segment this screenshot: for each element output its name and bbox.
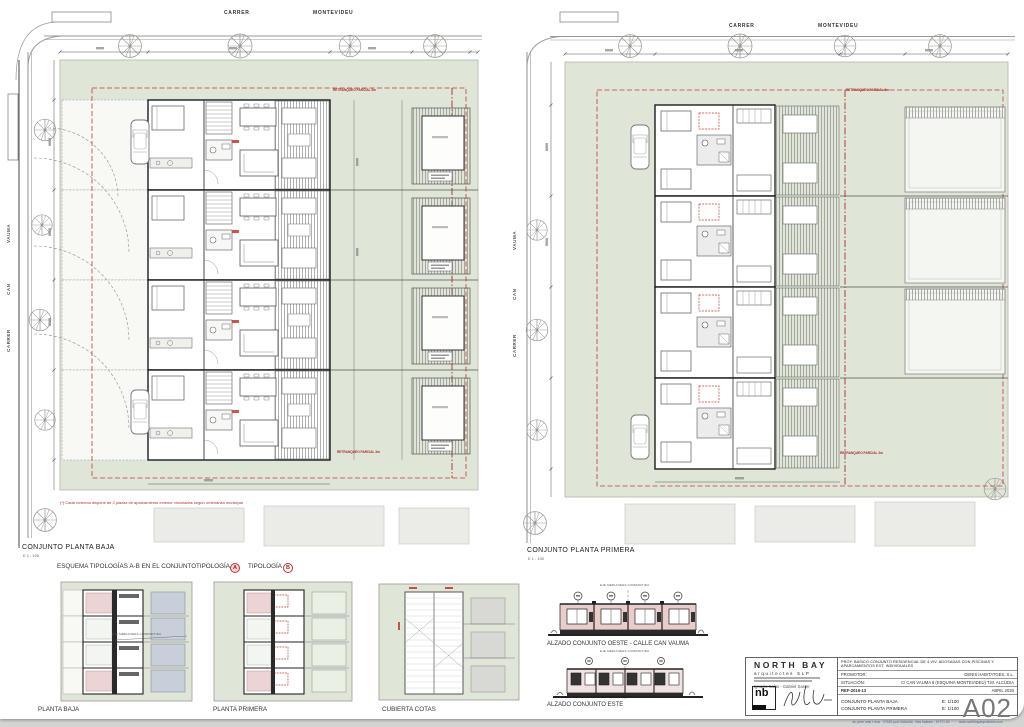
sheet-number: A02	[963, 697, 1012, 720]
situacion-value: C/ CAN VAUMA 6 (ESQUINA MONTEVIDEU) T.M.…	[901, 680, 1014, 685]
signature-icon	[780, 684, 834, 712]
drawing-sheet: CARRER MONTEVIDEU CARRER MONTEVIDEU VAUM…	[0, 0, 1024, 719]
street-label-carrer: CARRER	[729, 24, 755, 29]
plan-right-scale: E 1 : 100	[528, 557, 544, 561]
firm-tagline-bar	[754, 677, 820, 679]
street-label-carrer-vertical: CARRER	[7, 329, 12, 352]
street-label-vauma-vertical: VAUMA	[513, 231, 518, 250]
neighbor-buildings	[625, 502, 975, 546]
eje-medianera-label: EJE MEDIANERA COMPARTIDA	[600, 650, 649, 653]
tipologia-a-label: TIPOLOGÍA -	[196, 564, 233, 570]
car-icon	[631, 415, 649, 459]
sheet-scale-2: E: 1/100	[942, 706, 959, 711]
setback-note: RETRANQUEO PARCIAL 3m	[840, 452, 883, 455]
firm-tagline-bar	[754, 680, 812, 682]
promotor-label: PROMOTOR:	[841, 672, 867, 677]
title-block-data: PROY. BÁSICO CONJUNTO RESIDENCIAL DE 4 V…	[838, 658, 1017, 715]
elevation-west-label: ALZADO CONJUNTO OESTE - CALLE CAN VAUMA	[547, 641, 689, 647]
street-sign-plate	[52, 12, 111, 22]
firm-subtitle: arquitectes SLP	[754, 671, 837, 676]
plan-left-title: CONJUNTO PLANTA BAJA	[22, 544, 114, 551]
small-plan-label-planta-primera: PLANTA PRIMERA	[213, 707, 267, 713]
setback-note: RETRANQUEO PARCIAL 3m	[337, 451, 380, 454]
setback-note: RETRANQUEO PARCIAL 3m	[333, 89, 376, 92]
building-ground-floor	[148, 100, 330, 460]
eje-medianera-label: EJE MEDIANERA COMPARTIDA	[600, 584, 649, 587]
legend-plate	[8, 94, 18, 160]
elevation-east	[553, 655, 703, 703]
street-label-montevideu: MONTEVIDEU	[313, 11, 353, 16]
situacion-label: SITUACIÓN:	[841, 680, 865, 685]
firm-contact-line: av. pere mas i reus · 07400 port d'alcúd…	[838, 720, 1017, 725]
elevation-west	[548, 588, 708, 638]
sheet-content-1: CONJUNTO PLANTA BAJA	[841, 699, 898, 704]
street-label-montevideu: MONTEVIDEU	[818, 24, 858, 29]
firm-name: NORTH BAY	[754, 660, 837, 670]
tipologia-a-badge: A	[230, 563, 240, 573]
street-sign-plate	[560, 12, 618, 22]
small-plan-label-cubierta: CUBIERTA COTAS	[382, 707, 436, 713]
schema-plan-first	[208, 578, 358, 706]
schema-plan-ground	[55, 578, 195, 706]
site-plan-first-floor	[505, 8, 1020, 553]
schema-heading: ESQUEMA TIPOLOGÍAS A-B EN EL CONJUNTO	[57, 564, 196, 570]
car-icon	[131, 390, 149, 434]
neighbor-buildings	[154, 506, 469, 546]
eje-medianera-label: EJE MEDIANERA COMPARTIDA	[112, 633, 161, 636]
plan-left-scale: E 1 : 100	[23, 554, 39, 558]
project-title: PROY. BÁSICO CONJUNTO RESIDENCIAL DE 4 V…	[838, 658, 1017, 671]
promotor-value: DENIS HABITATGES, S.L.	[964, 672, 1014, 677]
sheet-scale-1: E: 1/100	[942, 699, 959, 704]
small-plan-label-planta-baja: PLANTA BAJA	[38, 707, 79, 713]
street-label-carrer: CARRER	[224, 11, 250, 16]
plan-footnote: (*) Cada vivienda dispone de 2 plazas de…	[60, 501, 243, 505]
title-block: NORTH BAY arquitectes SLP Ignacio Salas …	[745, 657, 1018, 716]
roof-gray-plates	[471, 598, 505, 692]
car-icon	[631, 125, 649, 169]
setback-note: RETRANQUEO PARCIAL 3m	[846, 89, 889, 92]
street-label-vauma-vertical: VAUMA	[7, 224, 12, 243]
firm-logo: nb	[752, 686, 776, 710]
schema-plan-roof	[375, 582, 523, 704]
roof-plates	[905, 107, 1005, 374]
site-plan-ground-floor	[4, 8, 484, 548]
tipologia-b-badge: B	[283, 563, 293, 573]
project-ref: REF-2019-13	[841, 688, 866, 693]
sheet-content-2: CONJUNTO PLANTA PRIMERA	[841, 706, 907, 711]
car-icon	[131, 120, 149, 164]
street-label-can-vertical: CAN	[7, 283, 12, 295]
title-block-firm: NORTH BAY arquitectes SLP Ignacio Salas …	[746, 658, 838, 715]
tipologia-b-label: TIPOLOGÍA -	[248, 564, 285, 570]
plan-right-title: CONJUNTO PLANTA PRIMERA	[527, 547, 635, 554]
elevation-east-label: ALZADO CONJUNTO ESTE	[547, 702, 623, 708]
street-label-carrer-vertical: CARRER	[513, 334, 518, 357]
street-label-can-vertical: CAN	[513, 288, 518, 300]
